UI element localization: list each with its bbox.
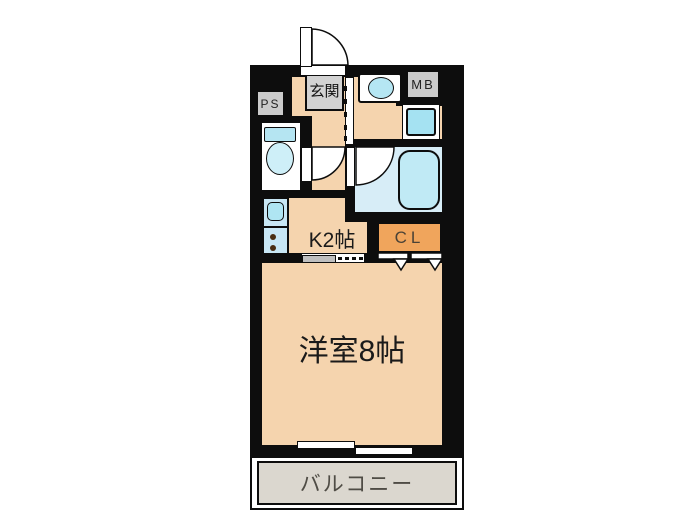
closet-bifold-doors-icon [377,252,443,272]
stove-burner-icon [270,245,276,251]
hall-sliding-door-icon [345,77,354,145]
entrance-genkan-box: 玄関 [305,70,344,111]
stove-burner-icon [270,234,276,240]
closet-box: CL [377,222,442,253]
balcony-label-text: バルコニー [300,468,415,498]
balcony-window-pane-left [297,441,355,449]
toilet-door-arc-icon [310,145,350,185]
bathtub-icon [398,150,440,210]
meter-box-label: MB [411,77,435,92]
washbasin-bowl-icon [368,77,394,99]
kitchen-label: K2帖 [296,225,368,253]
pipe-space-label: PS [260,97,280,111]
washing-machine-pan-icon [402,104,440,140]
balcony-area: バルコニー [257,461,457,505]
bath-door-arc-icon [354,145,398,189]
kitchen-partition-icon [301,253,365,263]
main-room-label-text: 洋室8帖 [299,326,406,370]
floor-plan: CL PS MB 玄関 [0,0,700,525]
balcony-window-pane-right [355,447,413,455]
washing-machine-pan-inner [406,108,436,136]
counter-divider [264,226,287,228]
meter-box: MB [406,70,440,99]
main-room-label: 洋室8帖 [262,328,442,368]
bath-door-leaf-icon [346,147,355,187]
toilet-bowl-icon [266,142,294,175]
closet-label: CL [395,228,425,248]
kitchen-label-text: K2帖 [309,224,356,254]
toilet-door-leaf-icon [301,147,312,182]
partition-panel [302,255,336,263]
entrance-door-leaf-icon [300,27,312,67]
toilet-tank-icon [264,127,296,142]
kitchen-sink-icon [267,202,284,221]
kitchen-counter-icon [262,197,289,255]
entrance-label: 玄関 [309,80,339,101]
pipe-space-box: PS [256,90,285,117]
